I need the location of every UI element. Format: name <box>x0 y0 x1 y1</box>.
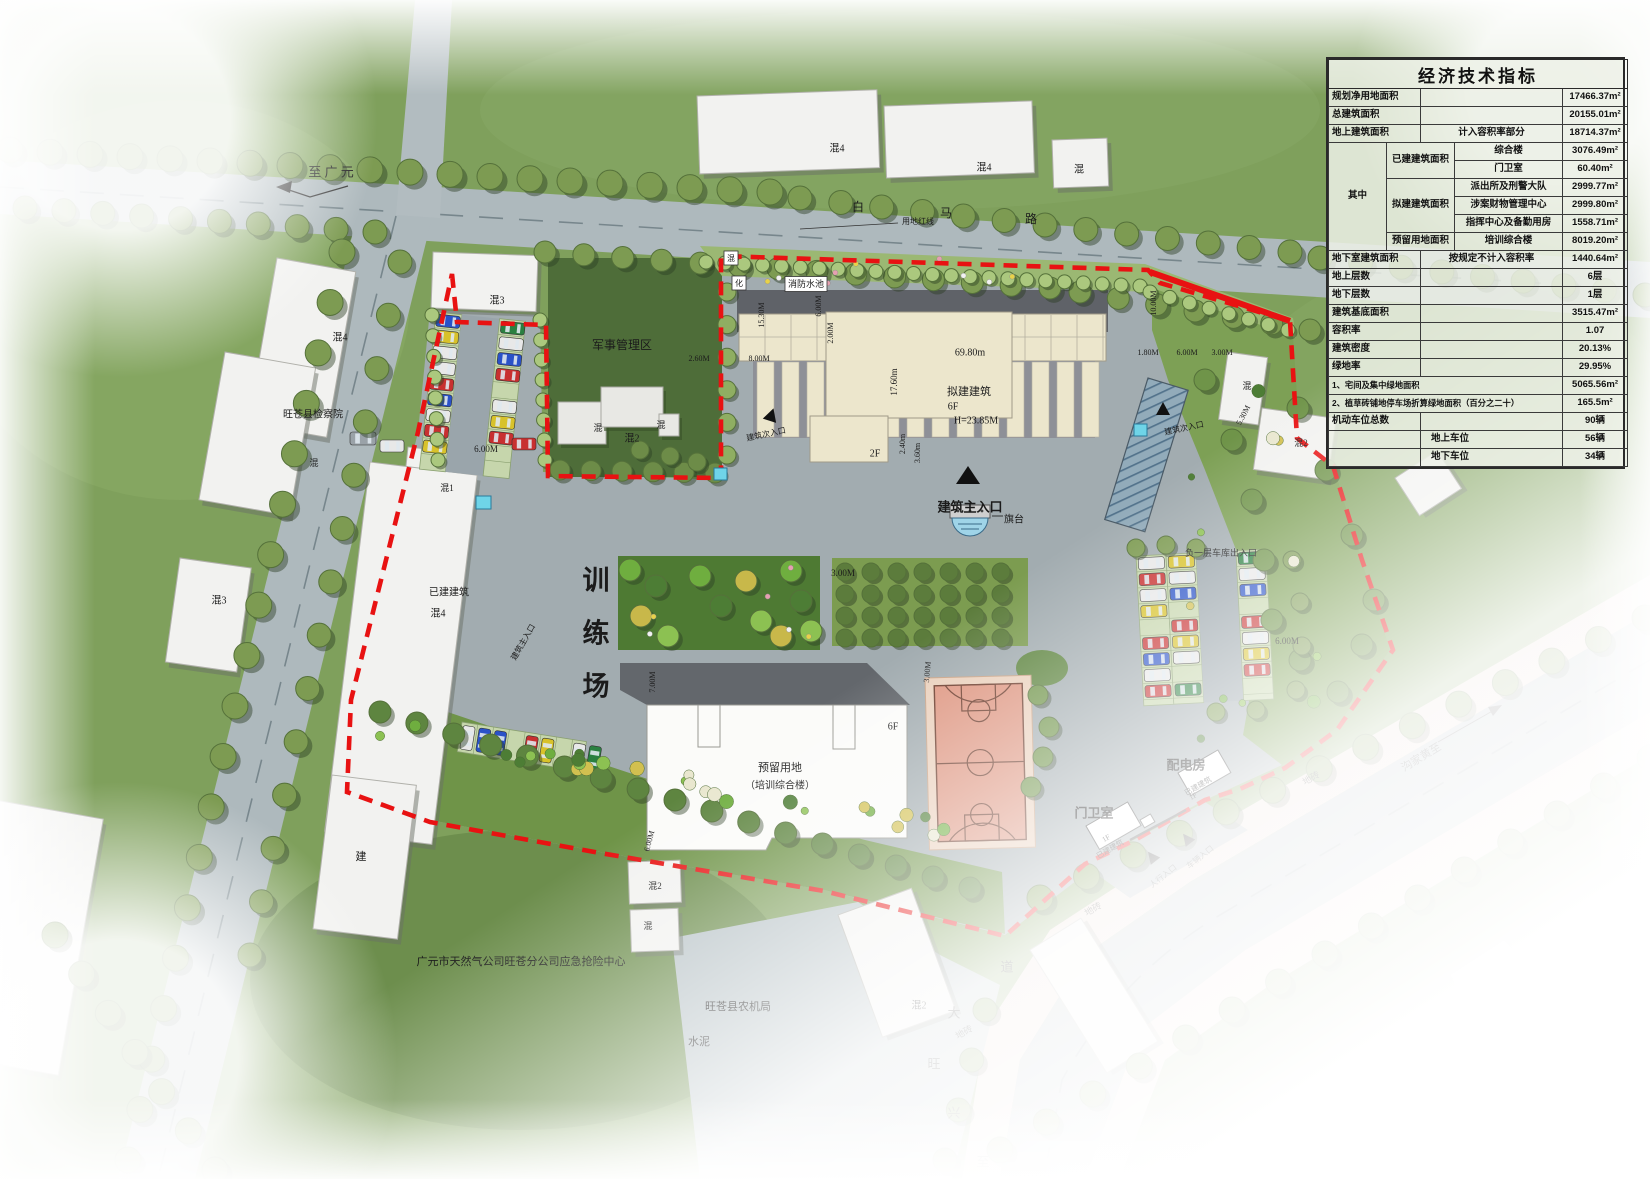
tree <box>710 595 732 617</box>
tree <box>888 629 906 647</box>
aisle <box>1196 551 1244 703</box>
tree <box>1287 397 1309 419</box>
building <box>630 908 684 957</box>
tree <box>1156 227 1180 251</box>
indicator-cell: 按规定不计入容积率 <box>1421 251 1563 269</box>
map-label: 已建建筑 <box>429 586 469 599</box>
map-label-text: 白 <box>852 199 864 214</box>
tree <box>13 196 37 220</box>
tree <box>966 629 984 647</box>
map-label: H=23.85M <box>954 416 998 427</box>
map-label-text: 6.00M <box>474 444 498 454</box>
indicator-cell: 2999.80m² <box>1563 197 1628 215</box>
tree <box>645 575 667 597</box>
shrub <box>409 720 420 731</box>
map-label: 6F <box>888 722 899 733</box>
map-label: 混2 <box>1294 438 1308 448</box>
tree <box>661 447 679 465</box>
tree <box>42 922 68 948</box>
map-label: 旗台 <box>1004 513 1024 526</box>
map-label-text: 混4 <box>977 162 992 174</box>
east-parking <box>1136 549 1274 706</box>
map-label-text: （培训综合楼） <box>745 779 815 792</box>
tree <box>836 607 854 625</box>
shrub <box>1186 602 1194 610</box>
car-glass <box>1146 607 1151 616</box>
car-glass <box>1148 655 1153 664</box>
tree <box>250 890 274 914</box>
car-body <box>1173 651 1200 664</box>
map-label-text: 混 <box>643 921 652 931</box>
tree <box>428 391 442 405</box>
map-label: 混2 <box>625 433 640 445</box>
shrub <box>1197 735 1205 743</box>
tree <box>202 1157 228 1179</box>
tree <box>987 1137 1013 1163</box>
tree <box>369 701 391 723</box>
map-label: 6F <box>948 402 959 413</box>
car-glass <box>1249 665 1254 674</box>
tree <box>888 607 906 625</box>
tree <box>1405 885 1431 911</box>
tree <box>651 249 673 271</box>
car-body <box>512 438 536 450</box>
tree <box>812 261 826 275</box>
tree <box>285 215 309 239</box>
map-label-text: 混4 <box>431 608 446 620</box>
indicator-cell: 指挥中心及备勤用房 <box>1455 215 1563 233</box>
car-glass <box>1160 638 1164 647</box>
map-label-text: 3.00M <box>1211 348 1232 357</box>
map-label-text: 至 广 元 <box>308 165 354 180</box>
tree <box>127 1097 153 1123</box>
tree <box>717 177 743 203</box>
tree <box>793 260 807 274</box>
indicator-cell: 56辆 <box>1563 431 1628 449</box>
map-label: 8.00M <box>748 354 769 363</box>
car-glass <box>355 434 360 444</box>
car-body <box>1142 636 1169 649</box>
car-glass <box>1157 574 1161 583</box>
flower <box>765 279 770 284</box>
tree <box>664 789 686 811</box>
map-label-text: 2F <box>870 449 881 460</box>
tree <box>1182 296 1196 310</box>
fin <box>1082 362 1099 437</box>
building-body <box>1052 138 1109 188</box>
tree <box>1076 276 1090 290</box>
map-label-text: 6.00M <box>1275 636 1299 646</box>
tree <box>1033 747 1053 767</box>
map-label: 1.80M <box>1137 348 1158 357</box>
tree <box>480 734 502 756</box>
car-body <box>497 352 522 366</box>
building-body <box>697 90 880 174</box>
map-label: 3.00M <box>1211 348 1232 357</box>
tree <box>1033 1109 1059 1135</box>
tree <box>425 308 439 322</box>
tree <box>1291 593 1309 611</box>
tree <box>91 201 115 225</box>
tree <box>1399 713 1425 739</box>
indicators-table: 经济技术指标 规划净用地面积17466.37m²总建筑面积20155.01m²地… <box>1326 57 1625 469</box>
map-label-text: 道 <box>1000 960 1013 975</box>
tree <box>870 195 894 219</box>
map-label: 混2 <box>648 881 662 891</box>
map-label: 混3 <box>212 595 227 607</box>
map-label-text: 旗台 <box>1004 513 1024 526</box>
map-label: 道 <box>1000 960 1013 975</box>
car-glass <box>517 440 521 449</box>
map-label-text: 15.30M <box>757 302 766 327</box>
car-glass <box>1191 653 1195 662</box>
tree <box>780 560 802 582</box>
car-glass <box>1174 573 1179 582</box>
tree <box>1237 236 1261 260</box>
map-label-text: 混 <box>1074 164 1084 176</box>
indicator-cell: 地上层数 <box>1329 269 1421 287</box>
map-label-text: 混1 <box>440 483 454 493</box>
map-label-text: 3.00M <box>922 661 933 683</box>
indicator-cell: 容积率 <box>1329 323 1421 341</box>
tree <box>757 179 783 205</box>
map-label-text: 化 <box>735 278 743 288</box>
shrub <box>545 749 555 759</box>
map-label-text: 3.60m <box>913 442 922 463</box>
tree <box>117 144 143 170</box>
car-body <box>1171 619 1198 632</box>
tree <box>888 265 902 279</box>
tree <box>914 563 932 581</box>
map-label: 混 <box>593 423 602 433</box>
indicator-cell: 地下层数 <box>1329 287 1421 305</box>
map-label: 门卫室 <box>1074 806 1113 821</box>
map-label-text: 6.00M <box>1176 348 1197 357</box>
map-label-text: 混2 <box>648 881 662 891</box>
map-label: 混2 <box>1512 1013 1527 1025</box>
map-label-text: 旺苍县农机局 <box>705 999 771 1013</box>
map-label: 军事管理区 <box>592 337 652 352</box>
building-body <box>431 252 538 312</box>
tree <box>52 199 76 223</box>
car-glass <box>1248 650 1253 659</box>
map-label: 混4 <box>431 608 446 620</box>
shrub <box>900 808 914 822</box>
map-label: 混4 <box>830 143 845 155</box>
map-label-text: 混2 <box>625 433 640 445</box>
indicator-cell: 3515.47m² <box>1563 305 1628 323</box>
tree <box>151 996 177 1022</box>
indicator-cell <box>1421 287 1563 305</box>
proposed-building <box>737 290 1108 462</box>
map-label: 6.00M <box>814 295 823 316</box>
indicator-cell: 综合楼 <box>1455 143 1563 161</box>
car-body <box>1175 683 1202 696</box>
building <box>697 90 884 179</box>
tree <box>1351 634 1373 656</box>
tree <box>149 1079 175 1105</box>
tree <box>319 570 343 594</box>
map-label-text: 旺 <box>927 1057 940 1072</box>
indicator-cell: 17466.37m² <box>1563 89 1628 107</box>
indicator-cell: 建筑密度 <box>1329 341 1421 359</box>
car-glass <box>1247 634 1252 643</box>
tree <box>95 1000 121 1026</box>
car <box>1243 647 1270 660</box>
tree <box>122 1040 148 1066</box>
tree <box>273 783 297 807</box>
map-label: 白 <box>852 199 864 214</box>
tree <box>1196 231 1220 255</box>
map-label-text: 门卫室 <box>1074 806 1113 821</box>
tree <box>437 161 463 187</box>
tree <box>940 629 958 647</box>
car <box>495 368 520 382</box>
map-label: 路 <box>1025 211 1037 226</box>
map-label: 训 <box>583 565 610 595</box>
tree <box>1020 273 1034 287</box>
indicator-cell: 34辆 <box>1563 449 1628 467</box>
map-label: 场 <box>583 671 610 701</box>
car <box>1144 668 1171 681</box>
tree <box>1173 1025 1199 1051</box>
tree <box>597 170 623 196</box>
indicator-cell: 地上建筑面积 <box>1329 125 1421 143</box>
map-label: 混 <box>724 251 738 265</box>
car-glass <box>1247 618 1252 627</box>
car <box>1142 636 1169 649</box>
tree <box>737 257 751 271</box>
car-body <box>380 440 404 452</box>
tree <box>959 877 981 899</box>
indicator-cell: 地下室建筑面积 <box>1329 251 1421 269</box>
map-label-text: 场 <box>583 671 610 701</box>
car-glass <box>1158 590 1162 599</box>
tree <box>992 585 1010 603</box>
tree <box>1074 863 1100 889</box>
car-body <box>492 399 517 413</box>
map-label-text: 2.60M <box>688 354 709 363</box>
shrub <box>937 823 950 836</box>
flower <box>786 627 791 632</box>
tree <box>1039 274 1053 288</box>
tree <box>1207 703 1225 721</box>
map-label-text: 69.80m <box>955 348 986 359</box>
indicator-cell <box>1421 89 1563 107</box>
tree <box>933 1148 957 1172</box>
shrub <box>375 731 384 740</box>
tree <box>966 563 984 581</box>
tree <box>429 412 443 426</box>
map-label: 混3 <box>490 295 505 307</box>
tree <box>198 794 224 820</box>
tree <box>157 146 183 172</box>
car-body <box>1240 583 1267 596</box>
indicator-cell: 8019.20m² <box>1563 233 1628 251</box>
map-label-text: 路 <box>1025 211 1037 226</box>
car <box>1171 619 1198 632</box>
tree <box>738 811 760 833</box>
tree <box>1591 773 1617 799</box>
map-label: 至 <box>976 1155 989 1170</box>
map-label-text: 训 <box>583 565 610 595</box>
car-glass <box>1260 633 1264 642</box>
car-glass <box>1177 621 1182 630</box>
tree <box>1039 717 1059 737</box>
tree <box>363 220 387 244</box>
building-body <box>884 101 1034 178</box>
map-label: 10.00M <box>1149 290 1158 315</box>
tree <box>862 629 880 647</box>
tree <box>1126 1053 1152 1079</box>
map-label: 混 <box>656 420 665 430</box>
indicator-cell <box>1421 413 1563 431</box>
car-glass <box>1244 570 1249 579</box>
indicator-cell: 6层 <box>1563 269 1628 287</box>
car <box>492 399 517 413</box>
indicator-cell: 5065.56m² <box>1563 377 1628 395</box>
map-label: 2.40m <box>898 433 907 454</box>
map-label-text: 混 <box>593 423 602 433</box>
map-label-text: 旺苍县检察院 <box>283 408 343 421</box>
tree <box>1127 539 1145 557</box>
indicator-cell: 地下车位 <box>1421 449 1563 467</box>
map-label: 混 <box>1242 381 1251 391</box>
map-label: 混 <box>1074 164 1084 176</box>
car-glass <box>1175 589 1180 598</box>
site-plan-page: 至 广 元白马路用地红线混4混4混混3军事管理区混混2混混4旺苍县检察院混混3混… <box>0 0 1650 1179</box>
map-label-text: 6.00M <box>814 295 823 316</box>
car-body <box>1242 631 1269 644</box>
tree <box>848 844 870 866</box>
map-label: 混4 <box>977 162 992 174</box>
tree <box>914 585 932 603</box>
indicator-cell: 1558.71m² <box>1563 215 1628 233</box>
indicator-cell: 18714.37m² <box>1563 125 1628 143</box>
map-label-text: 兴 <box>947 1106 960 1121</box>
car-glass <box>1190 637 1194 646</box>
tree <box>1312 941 1338 967</box>
tree <box>430 432 444 446</box>
indicator-cell: 已建建筑面积 <box>1387 143 1455 179</box>
tree <box>735 570 757 592</box>
tree <box>637 172 663 198</box>
tree <box>775 822 797 844</box>
tree <box>573 244 595 266</box>
car-glass <box>1262 665 1266 674</box>
tree <box>914 607 932 625</box>
tree <box>388 250 412 274</box>
indicator-cell: 预留用地面积 <box>1387 233 1455 251</box>
car-glass <box>1150 687 1155 696</box>
tree <box>788 186 812 210</box>
map-label: 马 <box>940 206 952 220</box>
flower <box>765 594 770 599</box>
indicator-cell: 2999.77m² <box>1563 179 1628 197</box>
tree <box>175 1118 201 1144</box>
car-body <box>1244 663 1271 676</box>
tree <box>627 778 649 800</box>
tree <box>477 164 503 190</box>
map-label: 混 <box>643 921 652 931</box>
tree <box>397 159 423 185</box>
map-label: 17.60m <box>889 368 899 395</box>
tree <box>1222 307 1236 321</box>
bin <box>714 468 727 480</box>
car-body <box>1143 652 1170 665</box>
map-label: （培训综合楼） <box>745 779 815 792</box>
map-label: 至 广 元 <box>308 165 354 180</box>
tree <box>324 217 348 241</box>
map-label: 旺 <box>927 1057 940 1072</box>
car <box>512 438 536 450</box>
tree <box>888 585 906 603</box>
indicator-cell: 绿地率 <box>1329 359 1421 377</box>
tree <box>222 693 248 719</box>
car <box>1173 651 1200 664</box>
tree <box>689 565 711 587</box>
tree <box>812 833 834 855</box>
indicator-cell: 规划净用地面积 <box>1329 89 1421 107</box>
map-label: 预留用地 <box>758 761 802 774</box>
shrub <box>892 821 904 833</box>
tree <box>1266 969 1292 995</box>
map-label-text: 练 <box>583 617 610 648</box>
tree <box>790 590 812 612</box>
indicator-cell: 涉案财物管理中心 <box>1455 197 1563 215</box>
shrub <box>859 802 870 813</box>
tree <box>186 844 212 870</box>
tree <box>774 259 788 273</box>
tree <box>246 592 272 618</box>
car-glass <box>1148 639 1153 648</box>
indicator-cell <box>1421 305 1563 323</box>
map-label: 化 <box>732 276 746 290</box>
tree <box>1247 701 1265 719</box>
shrub <box>1313 652 1321 660</box>
tree <box>1095 277 1109 291</box>
map-label-text: 马 <box>940 206 952 220</box>
map-label-text: 混 <box>727 254 735 263</box>
flower <box>788 565 793 570</box>
map-label: 69.80m <box>955 348 986 359</box>
car-body <box>1170 587 1197 600</box>
tree <box>951 204 975 228</box>
tree <box>281 441 307 467</box>
car-glass <box>1178 653 1183 662</box>
building <box>431 252 542 317</box>
tree <box>1446 691 1472 717</box>
car-glass <box>1257 585 1261 594</box>
indicator-cell: 总建筑面积 <box>1329 107 1421 125</box>
indicator-cell <box>1329 431 1421 449</box>
map-label-text: 3.00M <box>831 568 855 578</box>
tree <box>1242 312 1256 326</box>
flower <box>1010 274 1015 279</box>
car-glass <box>528 440 531 449</box>
car-body <box>1144 668 1171 681</box>
tree <box>836 585 854 603</box>
shrub <box>683 778 696 791</box>
map-label-text: 负一层车库出入口 <box>1185 547 1257 558</box>
car <box>1143 652 1170 665</box>
car-body <box>1172 635 1199 648</box>
tree <box>1260 777 1286 803</box>
tree <box>1358 913 1384 939</box>
shrub <box>501 749 512 760</box>
tree <box>699 255 713 269</box>
map-label-text: 17.60m <box>889 368 899 395</box>
